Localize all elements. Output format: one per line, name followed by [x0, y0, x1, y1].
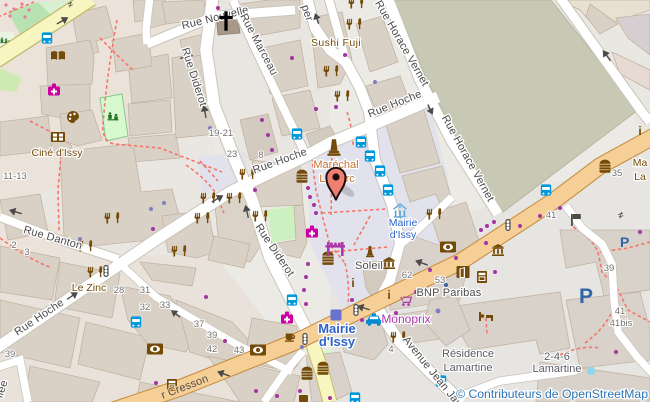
- svg-text:23: 23: [227, 149, 238, 160]
- svg-text:Mairie: Mairie: [389, 217, 418, 229]
- svg-text:Le Zinc: Le Zinc: [72, 282, 106, 294]
- svg-text:28: 28: [114, 285, 125, 296]
- svg-text:19-21: 19-21: [209, 128, 233, 139]
- svg-text:41: 41: [546, 210, 557, 221]
- svg-text:53: 53: [435, 275, 446, 286]
- svg-text:Sushi Fuji: Sushi Fuji: [311, 37, 361, 49]
- svg-text:P: P: [620, 234, 629, 250]
- svg-text:4: 4: [388, 344, 393, 355]
- svg-text:Ciné d'Issy: Ciné d'Issy: [31, 147, 83, 159]
- svg-text:d'Issy: d'Issy: [390, 229, 417, 241]
- svg-text:62: 62: [402, 270, 413, 281]
- svg-text:43: 43: [234, 345, 245, 356]
- svg-text:La: La: [634, 171, 646, 183]
- svg-text:Lamartine: Lamartine: [533, 363, 582, 375]
- svg-text:35: 35: [612, 168, 623, 179]
- svg-text:Lamartine: Lamartine: [444, 362, 493, 374]
- svg-text:2: 2: [11, 240, 16, 251]
- svg-text:41bis: 41bis: [610, 318, 633, 329]
- svg-text:P: P: [579, 285, 593, 308]
- svg-text:37: 37: [194, 319, 205, 330]
- svg-text:39: 39: [604, 263, 615, 274]
- svg-text:Soleil: Soleil: [355, 260, 383, 272]
- svg-text:42: 42: [207, 344, 218, 355]
- svg-text:© Contributeurs de OpenStreetM: © Contributeurs de OpenStreetMap: [456, 387, 648, 401]
- svg-text:Résidence: Résidence: [442, 348, 494, 360]
- svg-text:32: 32: [140, 302, 151, 313]
- svg-text:3: 3: [24, 247, 29, 258]
- svg-text:39: 39: [5, 349, 16, 360]
- svg-text:39: 39: [207, 330, 218, 341]
- svg-text:Ma: Ma: [633, 157, 648, 169]
- svg-text:8: 8: [258, 150, 263, 161]
- svg-text:Monoprix: Monoprix: [381, 312, 430, 326]
- svg-text:33: 33: [160, 300, 171, 311]
- svg-text:d'Issy: d'Issy: [319, 334, 356, 349]
- svg-text:31: 31: [140, 285, 151, 296]
- svg-text:11-13: 11-13: [3, 171, 27, 182]
- svg-text:BNP Paribas: BNP Paribas: [417, 287, 482, 299]
- svg-text:41: 41: [615, 306, 626, 317]
- svg-text:2-4-6: 2-4-6: [544, 351, 570, 363]
